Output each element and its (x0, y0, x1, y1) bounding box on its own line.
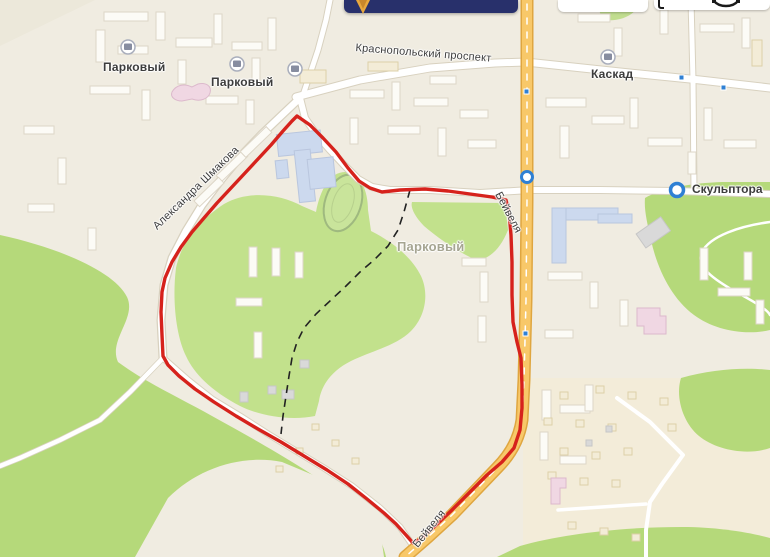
school-poi-icon[interactable] (121, 40, 135, 54)
toolbar-button-fragment[interactable] (558, 0, 648, 12)
school-poi-icon[interactable] (288, 62, 302, 76)
navigator-arrow-icon (354, 0, 378, 16)
stop-marker-icon[interactable] (523, 331, 528, 336)
district-label-parkovyy-center: Парковый (397, 239, 464, 254)
navigator-search-bar[interactable] (344, 0, 518, 13)
metro-stop-ring-icon[interactable] (522, 172, 533, 183)
district-label-kaskad: Каскад (591, 67, 633, 81)
skulptora-stop-ring-icon[interactable] (671, 184, 684, 197)
stop-marker-icon[interactable] (679, 75, 684, 80)
stop-marker-icon[interactable] (721, 85, 726, 90)
school-poi-icon[interactable] (601, 50, 615, 64)
stop-marker-icon[interactable] (524, 89, 529, 94)
school-poi-icon[interactable] (230, 57, 244, 71)
toolbar-button-fragment[interactable] (654, 0, 770, 10)
district-label-parkovyy-nw: Парковый (103, 60, 165, 74)
map-canvas[interactable] (0, 0, 770, 557)
pedestrian-mode-icon[interactable] (659, 0, 664, 8)
mode-icons-fragment (656, 0, 768, 10)
car-mode-icon[interactable] (712, 0, 740, 6)
map-screen: Парковый Парковый Парковый Каскад Красно… (0, 0, 770, 557)
stop-label-skulptora[interactable]: Скульптора (692, 182, 763, 196)
district-label-parkovyy-n: Парковый (211, 75, 273, 89)
